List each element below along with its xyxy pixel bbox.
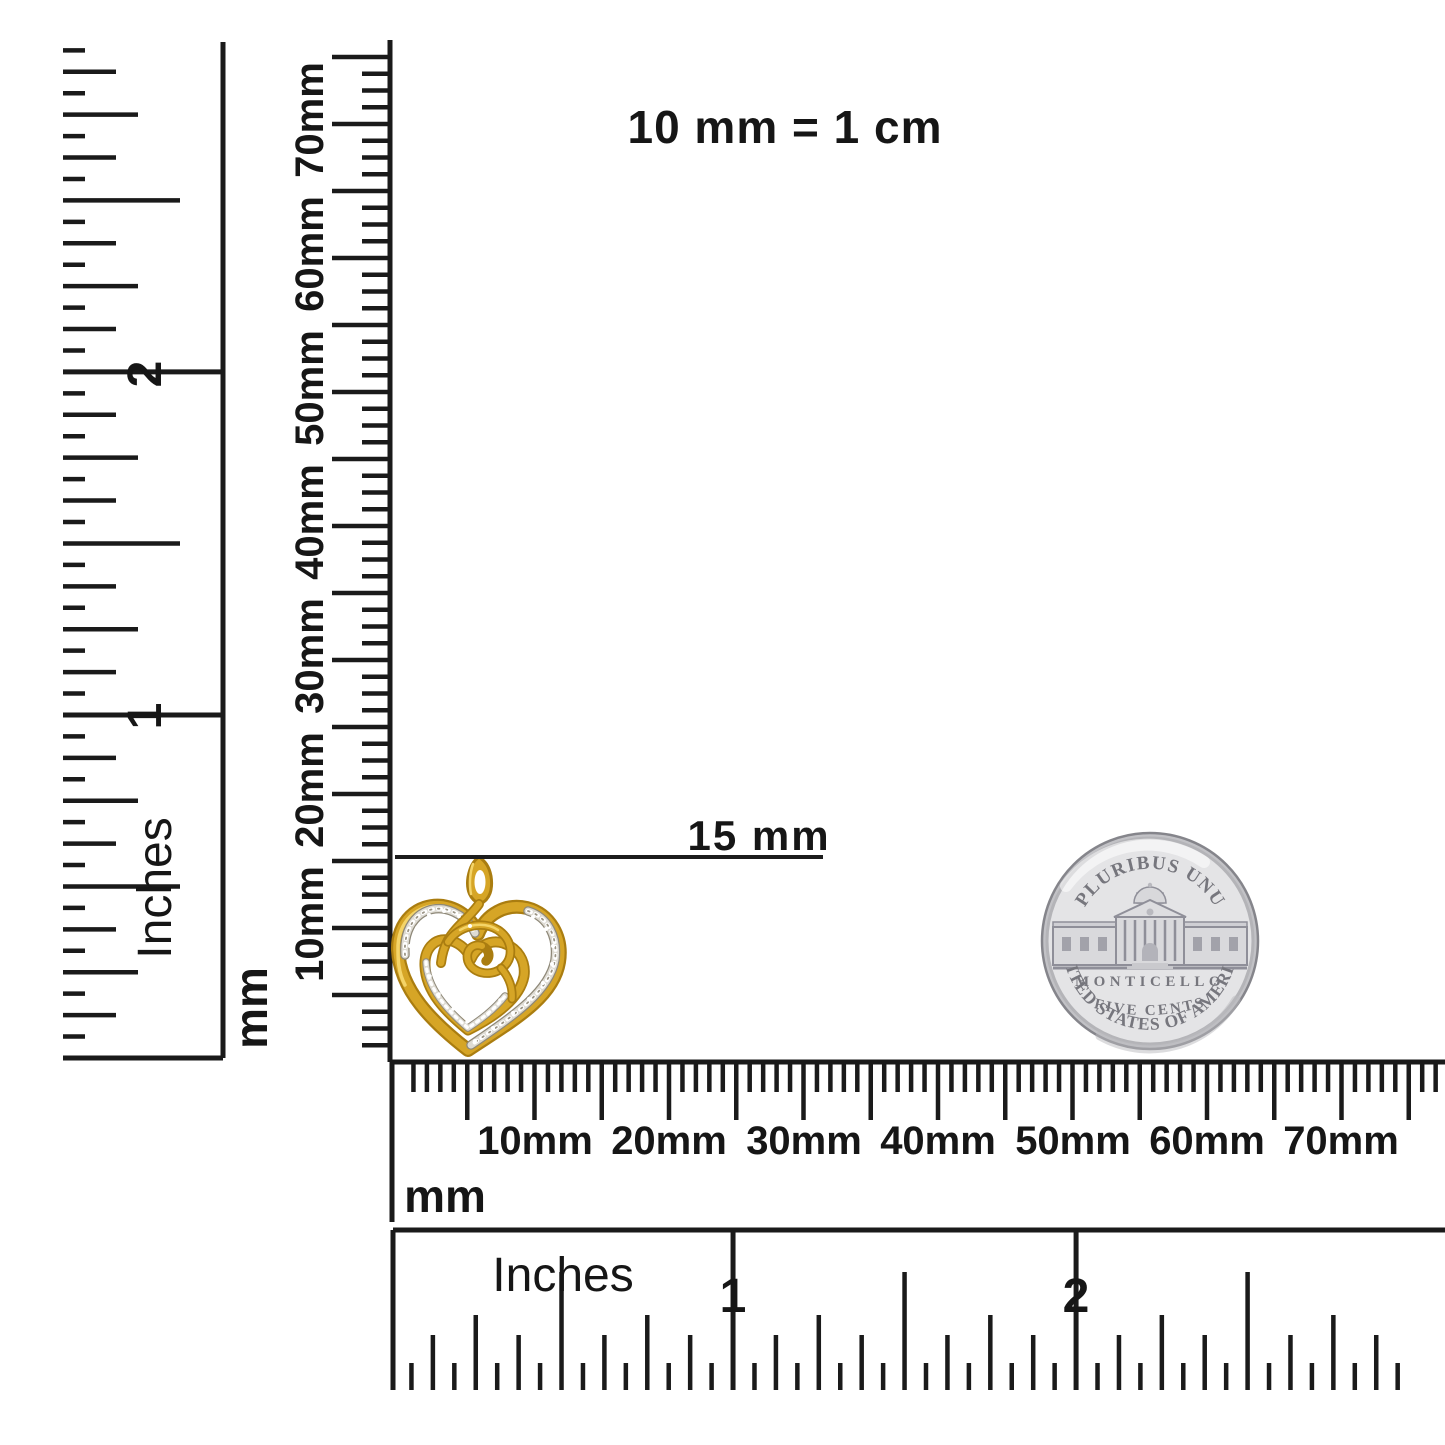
scene-graphics: E PLURIBUS UNUM xyxy=(0,0,1445,1445)
coin-legend-top: E PLURIBUS UNUM xyxy=(0,0,1229,915)
vertical-mm-label-70: 70mm xyxy=(290,62,330,178)
title: 10 mm = 1 cm xyxy=(627,104,942,150)
pendant-bail-icon xyxy=(468,857,492,904)
vertical-mm-label-60: 60mm xyxy=(290,196,330,312)
horizontal-mm-label-40: 40mm xyxy=(880,1121,996,1161)
vertical-mm-label-50: 50mm xyxy=(290,330,330,446)
bottom-inch-numeral-2: 2 xyxy=(1063,1273,1090,1321)
horizontal-mm-label-30: 30mm xyxy=(746,1121,862,1161)
product-size-guide: E PLURIBUS UNUM xyxy=(0,0,1445,1445)
measurement-line xyxy=(395,855,823,859)
vertical-mm-label-10: 10mm xyxy=(290,866,330,982)
horizontal-mm-label-70: 70mm xyxy=(1283,1121,1399,1161)
left-inch-numeral-1: 1 xyxy=(122,703,170,730)
left-inch-numeral-2: 2 xyxy=(122,361,170,388)
horizontal-mm-unit-label: mm xyxy=(404,1173,486,1219)
left-inch-unit-label: Inches xyxy=(132,817,180,958)
vertical-mm-label-30: 30mm xyxy=(290,598,330,714)
vertical-mm-label-40: 40mm xyxy=(290,464,330,580)
horizontal-mm-label-10: 10mm xyxy=(477,1121,593,1161)
heart-pendant-graphic xyxy=(398,857,560,1050)
coin-building-label: MONTICELLO xyxy=(1075,974,1225,990)
vertical-mm-ruler-ticks xyxy=(332,40,390,1062)
bottom-inch-numeral-1: 1 xyxy=(720,1273,747,1321)
coin-legend-bottom: UNITED STATES OF AMERICA xyxy=(0,0,1238,1034)
horizontal-mm-label-50: 50mm xyxy=(1015,1121,1131,1161)
measurement-annotation: 15 mm xyxy=(687,815,830,857)
nickel-coin-graphic: E PLURIBUS UNUM xyxy=(0,0,1258,1049)
bottom-inch-unit-label: Inches xyxy=(492,1252,633,1300)
vertical-mm-label-20: 20mm xyxy=(290,732,330,848)
horizontal-mm-label-20: 20mm xyxy=(611,1121,727,1161)
vertical-mm-unit-label: mm xyxy=(228,967,274,1049)
horizontal-mm-label-60: 60mm xyxy=(1149,1121,1265,1161)
